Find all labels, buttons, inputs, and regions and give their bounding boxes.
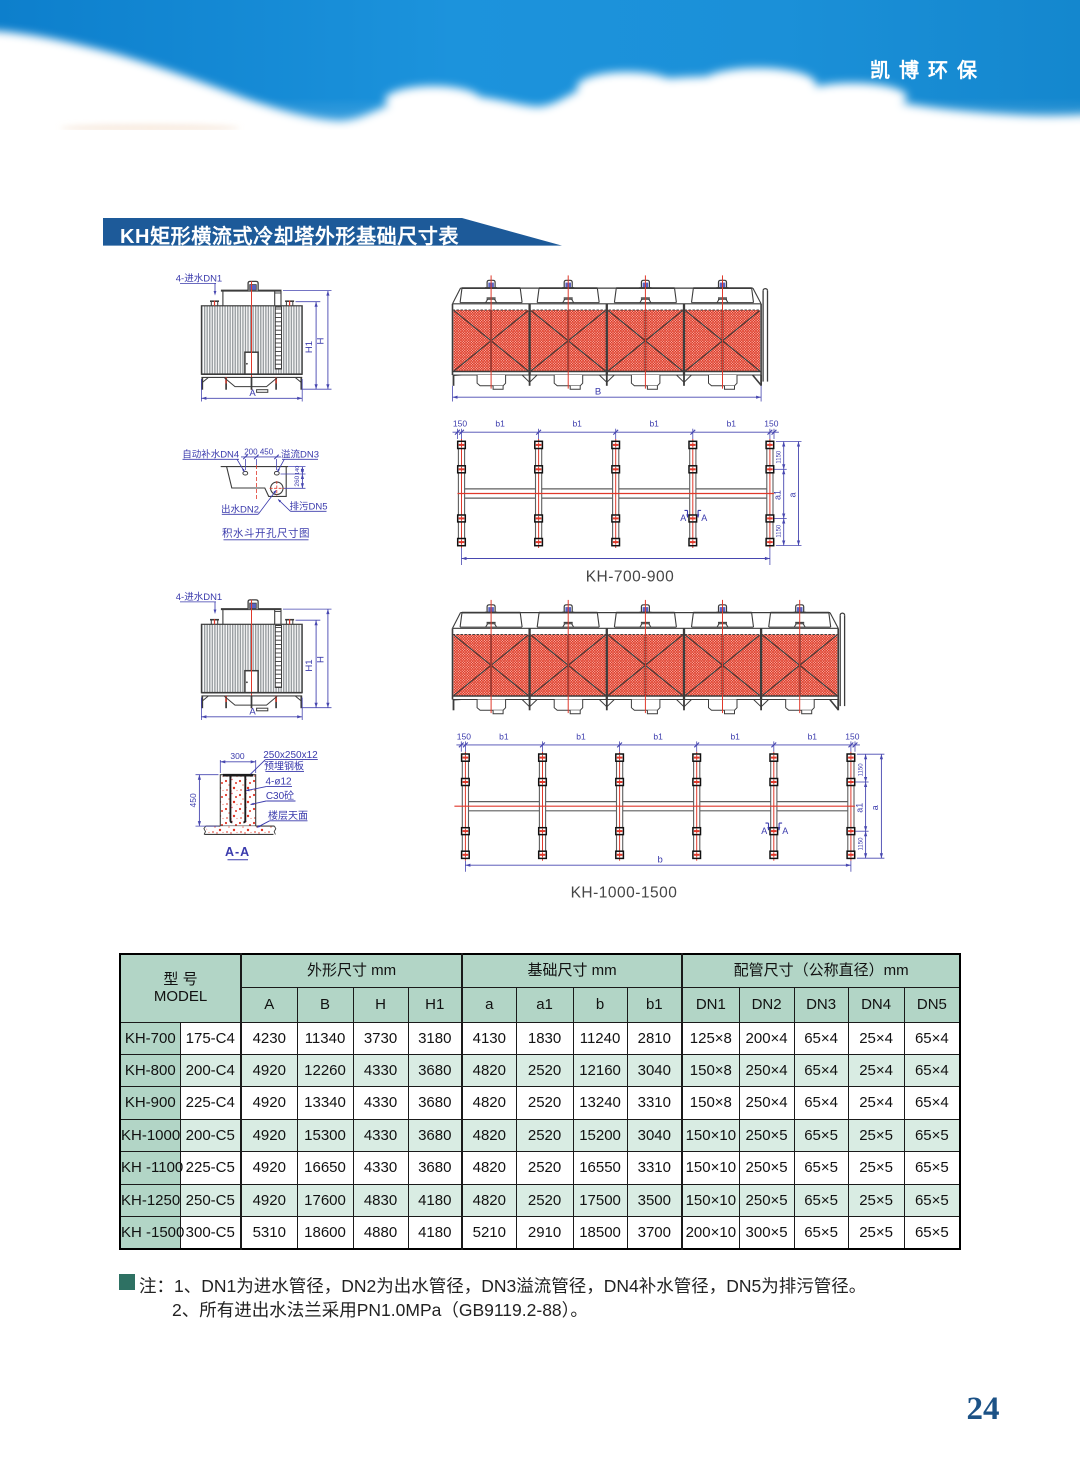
svg-text:b1: b1 bbox=[576, 731, 586, 741]
svg-text:a1: a1 bbox=[854, 803, 864, 813]
svg-text:A: A bbox=[701, 513, 707, 523]
svg-text:a: a bbox=[870, 805, 880, 810]
svg-text:4-ø12: 4-ø12 bbox=[265, 777, 292, 788]
svg-text:H: H bbox=[316, 656, 327, 663]
svg-text:b1: b1 bbox=[499, 731, 509, 741]
svg-text:1150: 1150 bbox=[858, 763, 864, 777]
svg-text:1150: 1150 bbox=[777, 524, 783, 538]
svg-text:自动补水DN4: 自动补水DN4 bbox=[182, 449, 239, 461]
svg-text:A: A bbox=[249, 388, 256, 399]
svg-text:a1: a1 bbox=[773, 490, 783, 500]
svg-text:250x250x12: 250x250x12 bbox=[263, 750, 318, 761]
svg-text:b1: b1 bbox=[727, 419, 737, 429]
svg-text:A: A bbox=[782, 826, 788, 836]
svg-text:出水DN2: 出水DN2 bbox=[221, 504, 259, 516]
svg-text:b1: b1 bbox=[495, 419, 505, 429]
svg-text:B: B bbox=[595, 387, 601, 398]
svg-text:b1: b1 bbox=[653, 731, 663, 741]
svg-text:b1: b1 bbox=[572, 419, 582, 429]
svg-text:450: 450 bbox=[188, 793, 198, 807]
svg-text:KH-700-900: KH-700-900 bbox=[586, 569, 675, 586]
svg-text:b: b bbox=[657, 855, 662, 866]
svg-text:KH-1000-1500: KH-1000-1500 bbox=[571, 885, 678, 902]
svg-text:4-进水DN1: 4-进水DN1 bbox=[176, 273, 222, 285]
svg-text:H: H bbox=[316, 337, 327, 344]
svg-text:A: A bbox=[761, 826, 767, 836]
svg-text:4-进水DN1: 4-进水DN1 bbox=[176, 591, 222, 603]
svg-text:a: a bbox=[787, 492, 797, 497]
svg-text:积水斗开孔尺寸图: 积水斗开孔尺寸图 bbox=[222, 527, 310, 540]
svg-text:1150: 1150 bbox=[777, 450, 783, 464]
svg-text:1150: 1150 bbox=[858, 837, 864, 851]
svg-text:200: 200 bbox=[244, 448, 258, 457]
svg-text:A-A: A-A bbox=[225, 845, 250, 859]
svg-text:H1: H1 bbox=[304, 659, 315, 671]
svg-text:排污DN5: 排污DN5 bbox=[289, 501, 327, 513]
svg-text:150: 150 bbox=[453, 419, 467, 429]
svg-text:450: 450 bbox=[260, 448, 274, 457]
svg-text:260: 260 bbox=[294, 475, 301, 486]
svg-text:H1: H1 bbox=[304, 341, 315, 353]
svg-text:150: 150 bbox=[764, 419, 778, 429]
svg-text:150: 150 bbox=[457, 731, 471, 741]
svg-text:A: A bbox=[680, 513, 686, 523]
svg-text:b1: b1 bbox=[730, 731, 740, 741]
svg-text:C30砼: C30砼 bbox=[266, 789, 294, 802]
svg-text:300: 300 bbox=[230, 751, 244, 761]
svg-text:溢流DN3: 溢流DN3 bbox=[281, 449, 319, 461]
svg-text:b1: b1 bbox=[649, 419, 659, 429]
svg-text:A: A bbox=[249, 707, 256, 718]
svg-text:楼层天面: 楼层天面 bbox=[268, 809, 308, 822]
svg-text:b1: b1 bbox=[808, 731, 818, 741]
svg-text:150: 150 bbox=[845, 731, 859, 741]
svg-text:预埋钢板: 预埋钢板 bbox=[264, 760, 304, 773]
svg-text:140: 140 bbox=[295, 466, 301, 475]
